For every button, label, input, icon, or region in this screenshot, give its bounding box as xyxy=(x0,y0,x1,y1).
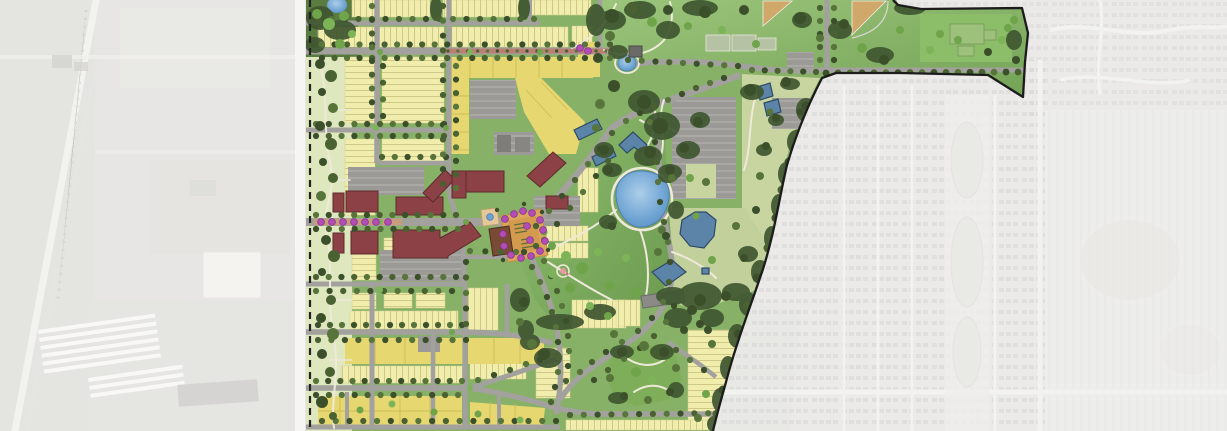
tree-icon xyxy=(548,399,554,405)
tree-icon xyxy=(699,6,711,18)
tree-icon xyxy=(352,392,358,398)
residential-block xyxy=(566,420,716,430)
tree-icon xyxy=(355,16,361,22)
tree-icon xyxy=(651,103,657,109)
tree-icon xyxy=(529,264,535,270)
tree-icon xyxy=(501,243,508,250)
tree-icon xyxy=(555,339,561,345)
tree-icon xyxy=(567,412,573,418)
tree-icon xyxy=(326,295,336,305)
tree-icon xyxy=(569,41,575,47)
tree-icon xyxy=(626,2,638,14)
tree-icon xyxy=(619,339,625,345)
tree-icon xyxy=(321,235,331,245)
tree-icon xyxy=(449,329,455,335)
tree-icon xyxy=(555,49,558,52)
parking-lot xyxy=(494,132,534,155)
tree-icon xyxy=(831,5,837,11)
tree-icon xyxy=(694,414,702,422)
tree-icon xyxy=(346,418,352,424)
tree-icon xyxy=(453,104,459,110)
sport-court xyxy=(758,38,776,50)
tree-icon xyxy=(542,238,549,245)
tree-icon xyxy=(484,418,490,424)
tree-icon xyxy=(772,114,780,122)
tree-icon xyxy=(319,158,327,166)
tree-icon xyxy=(565,333,571,339)
tree-icon xyxy=(369,99,375,105)
tree-icon xyxy=(569,55,575,61)
tree-icon xyxy=(580,189,586,195)
tree-icon xyxy=(494,55,500,61)
tree-icon xyxy=(373,125,379,131)
tree-icon xyxy=(351,212,357,218)
tree-icon xyxy=(666,388,674,396)
tree-icon xyxy=(382,41,388,47)
tree-icon xyxy=(539,418,545,424)
tree-icon xyxy=(453,212,459,218)
tree-icon xyxy=(896,26,904,34)
tree-icon xyxy=(508,252,515,259)
tree-icon xyxy=(313,212,319,218)
tree-icon xyxy=(553,324,559,330)
tree-icon xyxy=(422,378,428,384)
tree-icon xyxy=(494,41,500,47)
tree-icon xyxy=(429,392,435,398)
tree-icon xyxy=(423,322,429,328)
tree-icon xyxy=(660,299,666,305)
tree-icon xyxy=(382,337,388,343)
tree-icon xyxy=(507,55,513,61)
tree-icon xyxy=(313,288,319,294)
tree-icon xyxy=(525,418,531,424)
tree-icon xyxy=(379,154,385,160)
tree-icon xyxy=(693,117,703,127)
tree-icon xyxy=(377,392,383,398)
tree-icon xyxy=(339,322,345,328)
tree-icon xyxy=(339,121,345,127)
tree-icon xyxy=(360,418,366,424)
tree-icon xyxy=(486,49,489,52)
tree-icon xyxy=(415,212,421,218)
tree-icon xyxy=(326,274,332,280)
tree-icon xyxy=(506,49,509,52)
tree-icon xyxy=(879,55,889,65)
tree-icon xyxy=(652,139,658,145)
tree-icon xyxy=(608,411,614,417)
tree-icon xyxy=(440,33,446,39)
tree-icon xyxy=(603,165,613,175)
tree-icon xyxy=(453,171,459,177)
tree-icon xyxy=(428,121,434,127)
tree-icon xyxy=(546,248,550,252)
tree-icon xyxy=(440,136,446,142)
tree-icon xyxy=(608,222,616,230)
tree-icon xyxy=(817,5,823,11)
tree-icon xyxy=(740,254,748,262)
master-plan-svg xyxy=(0,0,1227,431)
residential-block xyxy=(468,288,498,330)
tree-icon xyxy=(501,258,505,262)
tree-icon xyxy=(382,55,388,61)
tree-icon xyxy=(554,288,560,294)
tree-icon xyxy=(369,337,375,343)
md-parcel xyxy=(345,338,463,364)
tree-icon xyxy=(363,322,369,328)
tree-icon xyxy=(813,69,819,75)
mixed-use-building xyxy=(333,193,344,212)
tree-icon xyxy=(463,16,469,22)
tree-icon xyxy=(403,133,409,139)
tree-icon xyxy=(329,412,337,420)
tree-icon xyxy=(339,392,345,398)
tree-icon xyxy=(659,347,669,357)
tree-icon xyxy=(668,174,676,182)
tree-icon xyxy=(317,349,327,359)
tree-icon xyxy=(544,41,550,47)
tree-icon xyxy=(595,412,601,418)
tree-icon xyxy=(696,320,704,328)
tree-icon xyxy=(344,55,350,61)
tree-icon xyxy=(702,390,710,398)
tree-icon xyxy=(390,392,396,398)
tree-icon xyxy=(677,410,683,416)
tree-icon xyxy=(657,199,663,205)
tree-icon xyxy=(316,396,328,408)
tree-icon xyxy=(620,392,628,400)
tree-icon xyxy=(647,17,657,27)
tree-icon xyxy=(667,259,673,265)
tree-icon xyxy=(319,418,325,424)
tree-icon xyxy=(519,41,525,47)
tree-icon xyxy=(440,166,446,172)
tree-icon xyxy=(315,59,325,69)
tree-icon xyxy=(520,208,527,215)
tree-icon xyxy=(936,30,944,38)
tree-icon xyxy=(369,30,375,36)
tree-icon xyxy=(680,60,686,66)
tree-icon xyxy=(686,174,694,182)
tree-icon xyxy=(380,113,386,119)
tree-icon xyxy=(563,318,569,324)
tree-icon xyxy=(516,49,519,52)
site-plan-image: master-plan-site-rendering xyxy=(0,0,1227,431)
tree-icon xyxy=(407,55,413,61)
tree-icon xyxy=(408,288,414,294)
tree-icon xyxy=(637,95,651,109)
tree-icon xyxy=(427,212,433,218)
tree-icon xyxy=(671,303,677,309)
tree-icon xyxy=(491,372,497,378)
tree-icon xyxy=(318,219,325,226)
tree-icon xyxy=(325,70,337,82)
tree-icon xyxy=(565,363,571,369)
tree-icon xyxy=(517,16,523,22)
tree-icon xyxy=(500,231,507,238)
tree-icon xyxy=(401,418,407,424)
tree-icon xyxy=(561,251,571,261)
tree-icon xyxy=(816,34,824,42)
tree-icon xyxy=(707,80,713,86)
tree-icon xyxy=(490,16,496,22)
tree-icon xyxy=(631,287,641,297)
tree-icon xyxy=(800,69,806,75)
tree-icon xyxy=(403,226,409,232)
tree-icon xyxy=(482,55,488,61)
tree-icon xyxy=(463,290,469,296)
tree-icon xyxy=(375,322,381,328)
tree-icon xyxy=(604,312,612,320)
tree-icon xyxy=(390,226,396,232)
tree-icon xyxy=(467,49,473,55)
tree-icon xyxy=(610,330,618,338)
tree-icon xyxy=(622,254,630,262)
tree-icon xyxy=(794,12,806,24)
tree-icon xyxy=(351,133,357,139)
tree-icon xyxy=(352,226,358,232)
tree-icon xyxy=(648,376,656,384)
tree-icon xyxy=(351,121,357,127)
tree-icon xyxy=(498,418,504,424)
tree-icon xyxy=(416,226,422,232)
tree-icon xyxy=(415,418,421,424)
tree-icon xyxy=(380,96,386,102)
tree-icon xyxy=(389,401,396,408)
tree-icon xyxy=(374,418,380,424)
tree-icon xyxy=(762,142,770,150)
tree-icon xyxy=(403,392,409,398)
tree-icon xyxy=(453,117,459,123)
tree-icon xyxy=(356,41,362,47)
tree-icon xyxy=(411,322,417,328)
tree-icon xyxy=(652,118,668,134)
tree-icon xyxy=(544,294,550,300)
tree-icon xyxy=(577,45,584,52)
tree-icon xyxy=(625,57,631,63)
tree-icon xyxy=(440,3,446,9)
tree-icon xyxy=(463,274,469,280)
tree-icon xyxy=(593,53,603,63)
tree-icon xyxy=(456,49,459,52)
tree-icon xyxy=(556,354,562,360)
tree-icon xyxy=(1010,16,1018,24)
tree-icon xyxy=(637,110,643,116)
tree-icon xyxy=(548,270,556,278)
tree-icon xyxy=(581,412,587,418)
tree-icon xyxy=(752,206,760,214)
tree-icon xyxy=(603,349,609,355)
tree-icon xyxy=(496,49,499,52)
tree-icon xyxy=(537,279,543,285)
tree-icon xyxy=(440,107,446,113)
tree-icon xyxy=(377,133,383,139)
tree-icon xyxy=(1015,69,1022,76)
tree-icon xyxy=(369,44,375,50)
tree-icon xyxy=(622,411,628,417)
tree-icon xyxy=(440,181,446,187)
tree-icon xyxy=(387,322,393,328)
tree-icon xyxy=(440,274,446,280)
tree-icon xyxy=(369,58,375,64)
tree-icon xyxy=(329,219,336,226)
tree-icon xyxy=(507,367,513,373)
tree-icon xyxy=(524,223,531,230)
tree-icon xyxy=(455,392,461,398)
residential-block xyxy=(531,0,591,15)
tree-icon xyxy=(459,378,465,384)
tree-icon xyxy=(595,49,598,52)
tree-icon xyxy=(392,154,398,160)
tree-icon xyxy=(533,223,539,229)
tree-icon xyxy=(453,131,459,137)
civic-building-small xyxy=(702,268,709,274)
tree-icon xyxy=(502,216,509,223)
mixed-use-building xyxy=(546,196,568,209)
tree-icon xyxy=(349,378,355,384)
tree-icon xyxy=(739,5,749,15)
tree-icon xyxy=(365,226,371,232)
tree-icon xyxy=(567,205,573,211)
tree-icon xyxy=(469,55,475,61)
tree-icon xyxy=(453,158,459,164)
residential-block xyxy=(384,293,412,308)
tree-icon xyxy=(639,58,645,64)
tree-icon xyxy=(342,337,348,343)
tree-icon xyxy=(396,337,402,343)
tree-icon xyxy=(351,322,357,328)
tree-icon xyxy=(389,212,395,218)
tree-icon xyxy=(591,377,597,383)
tree-icon xyxy=(373,219,380,226)
tree-icon xyxy=(585,48,592,55)
tree-icon xyxy=(554,221,560,227)
tree-icon xyxy=(402,274,408,280)
tree-icon xyxy=(517,417,524,424)
tree-icon xyxy=(516,318,524,326)
tree-icon xyxy=(666,59,672,65)
tree-icon xyxy=(340,219,347,226)
tree-icon xyxy=(482,41,488,47)
tree-icon xyxy=(410,378,416,384)
tree-icon xyxy=(527,237,534,244)
tree-icon xyxy=(369,113,375,119)
tree-icon xyxy=(419,55,425,61)
tree-icon xyxy=(377,274,383,280)
tree-icon xyxy=(423,16,429,22)
tree-icon xyxy=(467,385,473,391)
tree-icon xyxy=(382,16,388,22)
tree-icon xyxy=(984,48,992,56)
tree-icon xyxy=(735,63,741,69)
tree-icon xyxy=(395,288,401,294)
tree-icon xyxy=(617,347,627,357)
tree-icon xyxy=(316,313,326,323)
tree-icon xyxy=(335,39,345,49)
tree-icon xyxy=(694,61,700,67)
tree-icon xyxy=(364,212,370,218)
tree-icon xyxy=(453,274,459,280)
mixed-use-building xyxy=(333,233,344,253)
tree-icon xyxy=(749,67,755,73)
tree-icon xyxy=(694,294,706,306)
tree-icon xyxy=(576,262,588,274)
tree-icon xyxy=(666,279,672,285)
tree-icon xyxy=(663,319,669,325)
tree-icon xyxy=(432,41,438,47)
tree-icon xyxy=(831,44,837,50)
tree-icon xyxy=(679,91,685,97)
tree-icon xyxy=(327,328,339,340)
tree-icon xyxy=(607,41,613,47)
tree-icon xyxy=(857,43,867,53)
tree-icon xyxy=(377,49,383,55)
tree-icon xyxy=(415,274,421,280)
tree-icon xyxy=(555,369,561,375)
tree-icon xyxy=(469,41,475,47)
tree-icon xyxy=(605,281,615,291)
tree-icon xyxy=(525,49,528,52)
tree-icon xyxy=(559,193,565,199)
tree-icon xyxy=(444,41,450,47)
tree-icon xyxy=(787,68,793,74)
tree-icon xyxy=(446,49,449,52)
tree-icon xyxy=(430,154,436,160)
tree-icon xyxy=(609,130,615,136)
tree-icon xyxy=(532,55,538,61)
tree-icon xyxy=(377,287,383,293)
tree-icon xyxy=(348,30,356,38)
tree-icon xyxy=(419,41,425,47)
tree-icon xyxy=(316,191,326,201)
tree-icon xyxy=(549,309,555,315)
tree-icon xyxy=(377,226,383,232)
parking-lot xyxy=(787,52,814,68)
tree-icon xyxy=(519,55,525,61)
tree-icon xyxy=(405,154,411,160)
tree-icon xyxy=(313,378,319,384)
mixed-use-building xyxy=(396,197,443,215)
tree-icon xyxy=(654,248,662,256)
tree-icon xyxy=(313,226,319,232)
tree-icon xyxy=(457,55,463,61)
tree-icon xyxy=(369,72,375,78)
tree-icon xyxy=(767,109,774,116)
tree-icon xyxy=(592,124,600,132)
tree-icon xyxy=(364,121,370,127)
tree-icon xyxy=(313,274,319,280)
tree-icon xyxy=(604,49,607,52)
tree-icon xyxy=(390,121,396,127)
tree-icon xyxy=(369,3,375,9)
residential-block xyxy=(352,0,430,17)
tree-icon xyxy=(457,41,463,47)
playground-accent-dot xyxy=(566,273,569,276)
tree-icon xyxy=(364,133,370,139)
tree-icon xyxy=(435,322,441,328)
tree-icon xyxy=(537,49,543,55)
tree-icon xyxy=(447,322,453,328)
tree-icon xyxy=(463,219,469,225)
tree-icon xyxy=(605,9,619,23)
tree-icon xyxy=(744,84,756,96)
tree-icon xyxy=(775,68,781,74)
tree-icon xyxy=(661,219,667,225)
tree-icon xyxy=(1003,69,1010,76)
tree-icon xyxy=(477,16,483,22)
tree-icon xyxy=(537,248,544,255)
tree-icon xyxy=(599,145,609,155)
tree-icon xyxy=(544,55,550,61)
